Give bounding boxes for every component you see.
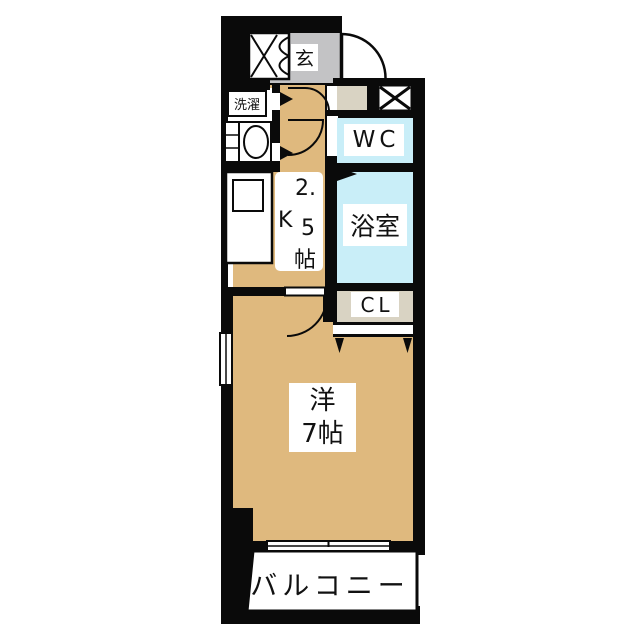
- wc-bath-wall: [333, 163, 413, 172]
- kitchen-label: 2. K 5 帖: [275, 172, 323, 271]
- genkan-label: 玄: [291, 44, 318, 71]
- closet-door-panel: [333, 322, 413, 337]
- western-room-label-line2: 7帖: [301, 418, 344, 451]
- right-wall: [413, 78, 425, 555]
- floorplan-canvas: 玄 洗濯 WC 浴室 2. K 5 帖 CL 洋 7帖 バルコニー: [0, 0, 640, 640]
- western-room-label-line1: 洋: [309, 385, 335, 418]
- left-wall-room: [221, 287, 233, 510]
- meter-nook-floor: [337, 86, 367, 110]
- bottom-wall-band: [221, 606, 420, 624]
- closet-side-wall: [323, 287, 337, 322]
- balcony-label: バルコニー: [245, 566, 415, 600]
- kitchen-label-k: K: [278, 208, 292, 233]
- room-bottom-wall-right: [390, 541, 413, 551]
- kitchen-label-jo: 帖: [294, 242, 316, 274]
- western-room-label: 洋 7帖: [289, 383, 356, 452]
- left-wall-upper: [221, 33, 228, 287]
- room-door-leaf: [285, 288, 325, 296]
- balcony-sliding-window-icon: [267, 541, 390, 551]
- kitchen-label-size-int: 2.: [295, 176, 316, 201]
- washstand-door-gap: [272, 143, 280, 161]
- bath-label: 浴室: [343, 204, 407, 246]
- kitchen-label-size-dec: 5: [301, 216, 315, 241]
- entrance-door-swing-arc: [342, 34, 386, 78]
- room-bottom-wall-left: [252, 541, 268, 551]
- top-left-wall-block: [221, 16, 270, 90]
- wc-label: WC: [344, 124, 404, 156]
- bath-closet-wall: [333, 283, 413, 291]
- laundry-door-gap: [272, 93, 280, 110]
- laundry-label: 洗濯: [227, 90, 267, 117]
- closet-label: CL: [351, 292, 399, 317]
